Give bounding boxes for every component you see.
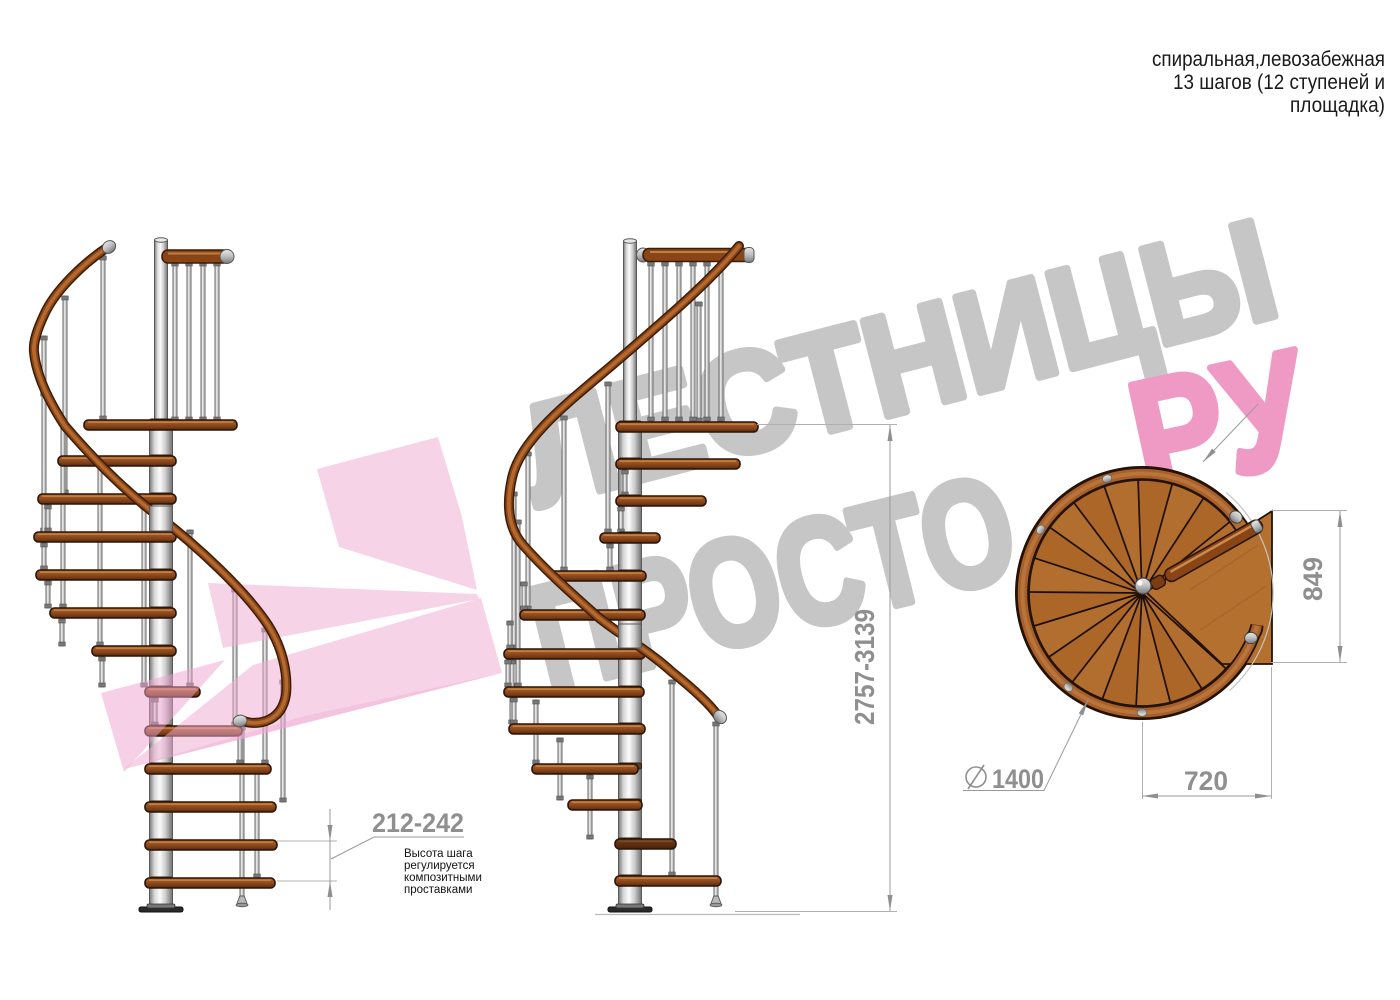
svg-text:регулируется: регулируется xyxy=(404,860,475,872)
svg-text:проставками: проставками xyxy=(404,884,472,896)
svg-text:1400: 1400 xyxy=(992,764,1044,794)
svg-text:849: 849 xyxy=(1298,557,1328,601)
svg-text:720: 720 xyxy=(1184,766,1228,796)
svg-text:2757-3139: 2757-3139 xyxy=(849,609,880,725)
svg-text:212-242: 212-242 xyxy=(372,808,464,838)
svg-text:композитными: композитными xyxy=(404,872,482,884)
svg-text:13 шагов (12 ступеней и: 13 шагов (12 ступеней и xyxy=(1173,71,1385,94)
svg-text:спиральная,левозабежная: спиральная,левозабежная xyxy=(1152,48,1385,71)
svg-text:Высота шага: Высота шага xyxy=(404,848,473,860)
svg-text:площадка): площадка) xyxy=(1290,94,1385,117)
